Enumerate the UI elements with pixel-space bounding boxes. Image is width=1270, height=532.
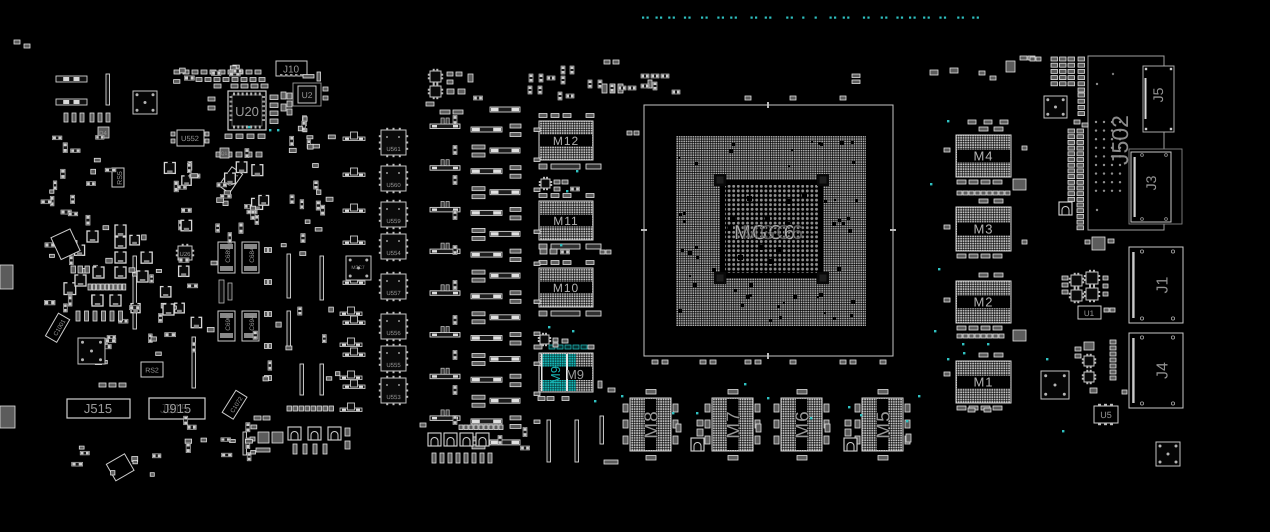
svg-text:U560: U560 (386, 182, 401, 189)
svg-text:M12: M12 (553, 134, 579, 148)
svg-text:J10: J10 (283, 65, 300, 76)
svg-text:U1: U1 (1084, 309, 1095, 318)
svg-text:M1: M1 (973, 375, 993, 390)
svg-text:U26: U26 (179, 251, 191, 258)
svg-text:U559: U559 (386, 218, 401, 225)
svg-text:M5: M5 (873, 410, 894, 438)
svg-text:J515: J515 (84, 401, 112, 416)
svg-text:U557: U557 (386, 290, 401, 297)
svg-text:M11: M11 (553, 214, 578, 228)
svg-text:U554: U554 (386, 250, 401, 257)
svg-text:U556: U556 (386, 330, 401, 337)
svg-text:J3: J3 (1143, 175, 1159, 190)
svg-text:J4: J4 (1155, 362, 1172, 379)
svg-text:C690: C690 (225, 315, 232, 331)
svg-text:U553: U553 (386, 394, 401, 401)
svg-text:M8: M8 (641, 410, 662, 438)
svg-text:J1: J1 (1155, 276, 1172, 293)
svg-text:MGC6: MGC6 (742, 222, 804, 244)
svg-text:C684: C684 (249, 247, 256, 263)
svg-text:M9: M9 (548, 366, 563, 384)
svg-text:U5: U5 (1100, 410, 1112, 420)
svg-text:M9: M9 (566, 367, 584, 382)
svg-text:J915: J915 (160, 401, 188, 416)
svg-text:U2: U2 (302, 90, 313, 100)
svg-text:Q1: Q1 (221, 151, 228, 157)
svg-text:U555: U555 (386, 362, 401, 369)
svg-text:U20: U20 (235, 104, 259, 119)
svg-text:M4: M4 (973, 149, 993, 164)
svg-text:U561: U561 (386, 146, 401, 153)
svg-text:M6: M6 (792, 410, 813, 438)
svg-text:RS2: RS2 (145, 368, 159, 375)
svg-text:C694: C694 (249, 315, 256, 331)
svg-text:M3: M3 (973, 222, 993, 237)
svg-text:C689: C689 (225, 247, 232, 263)
svg-text:U552: U552 (181, 134, 199, 143)
svg-text:RS5: RS5 (117, 171, 124, 185)
svg-text:M3C7: M3C7 (351, 265, 365, 271)
svg-text:M7: M7 (723, 410, 744, 438)
svg-text:J5: J5 (1150, 87, 1166, 102)
svg-text:M10: M10 (553, 281, 579, 295)
svg-text:M2: M2 (973, 295, 993, 310)
